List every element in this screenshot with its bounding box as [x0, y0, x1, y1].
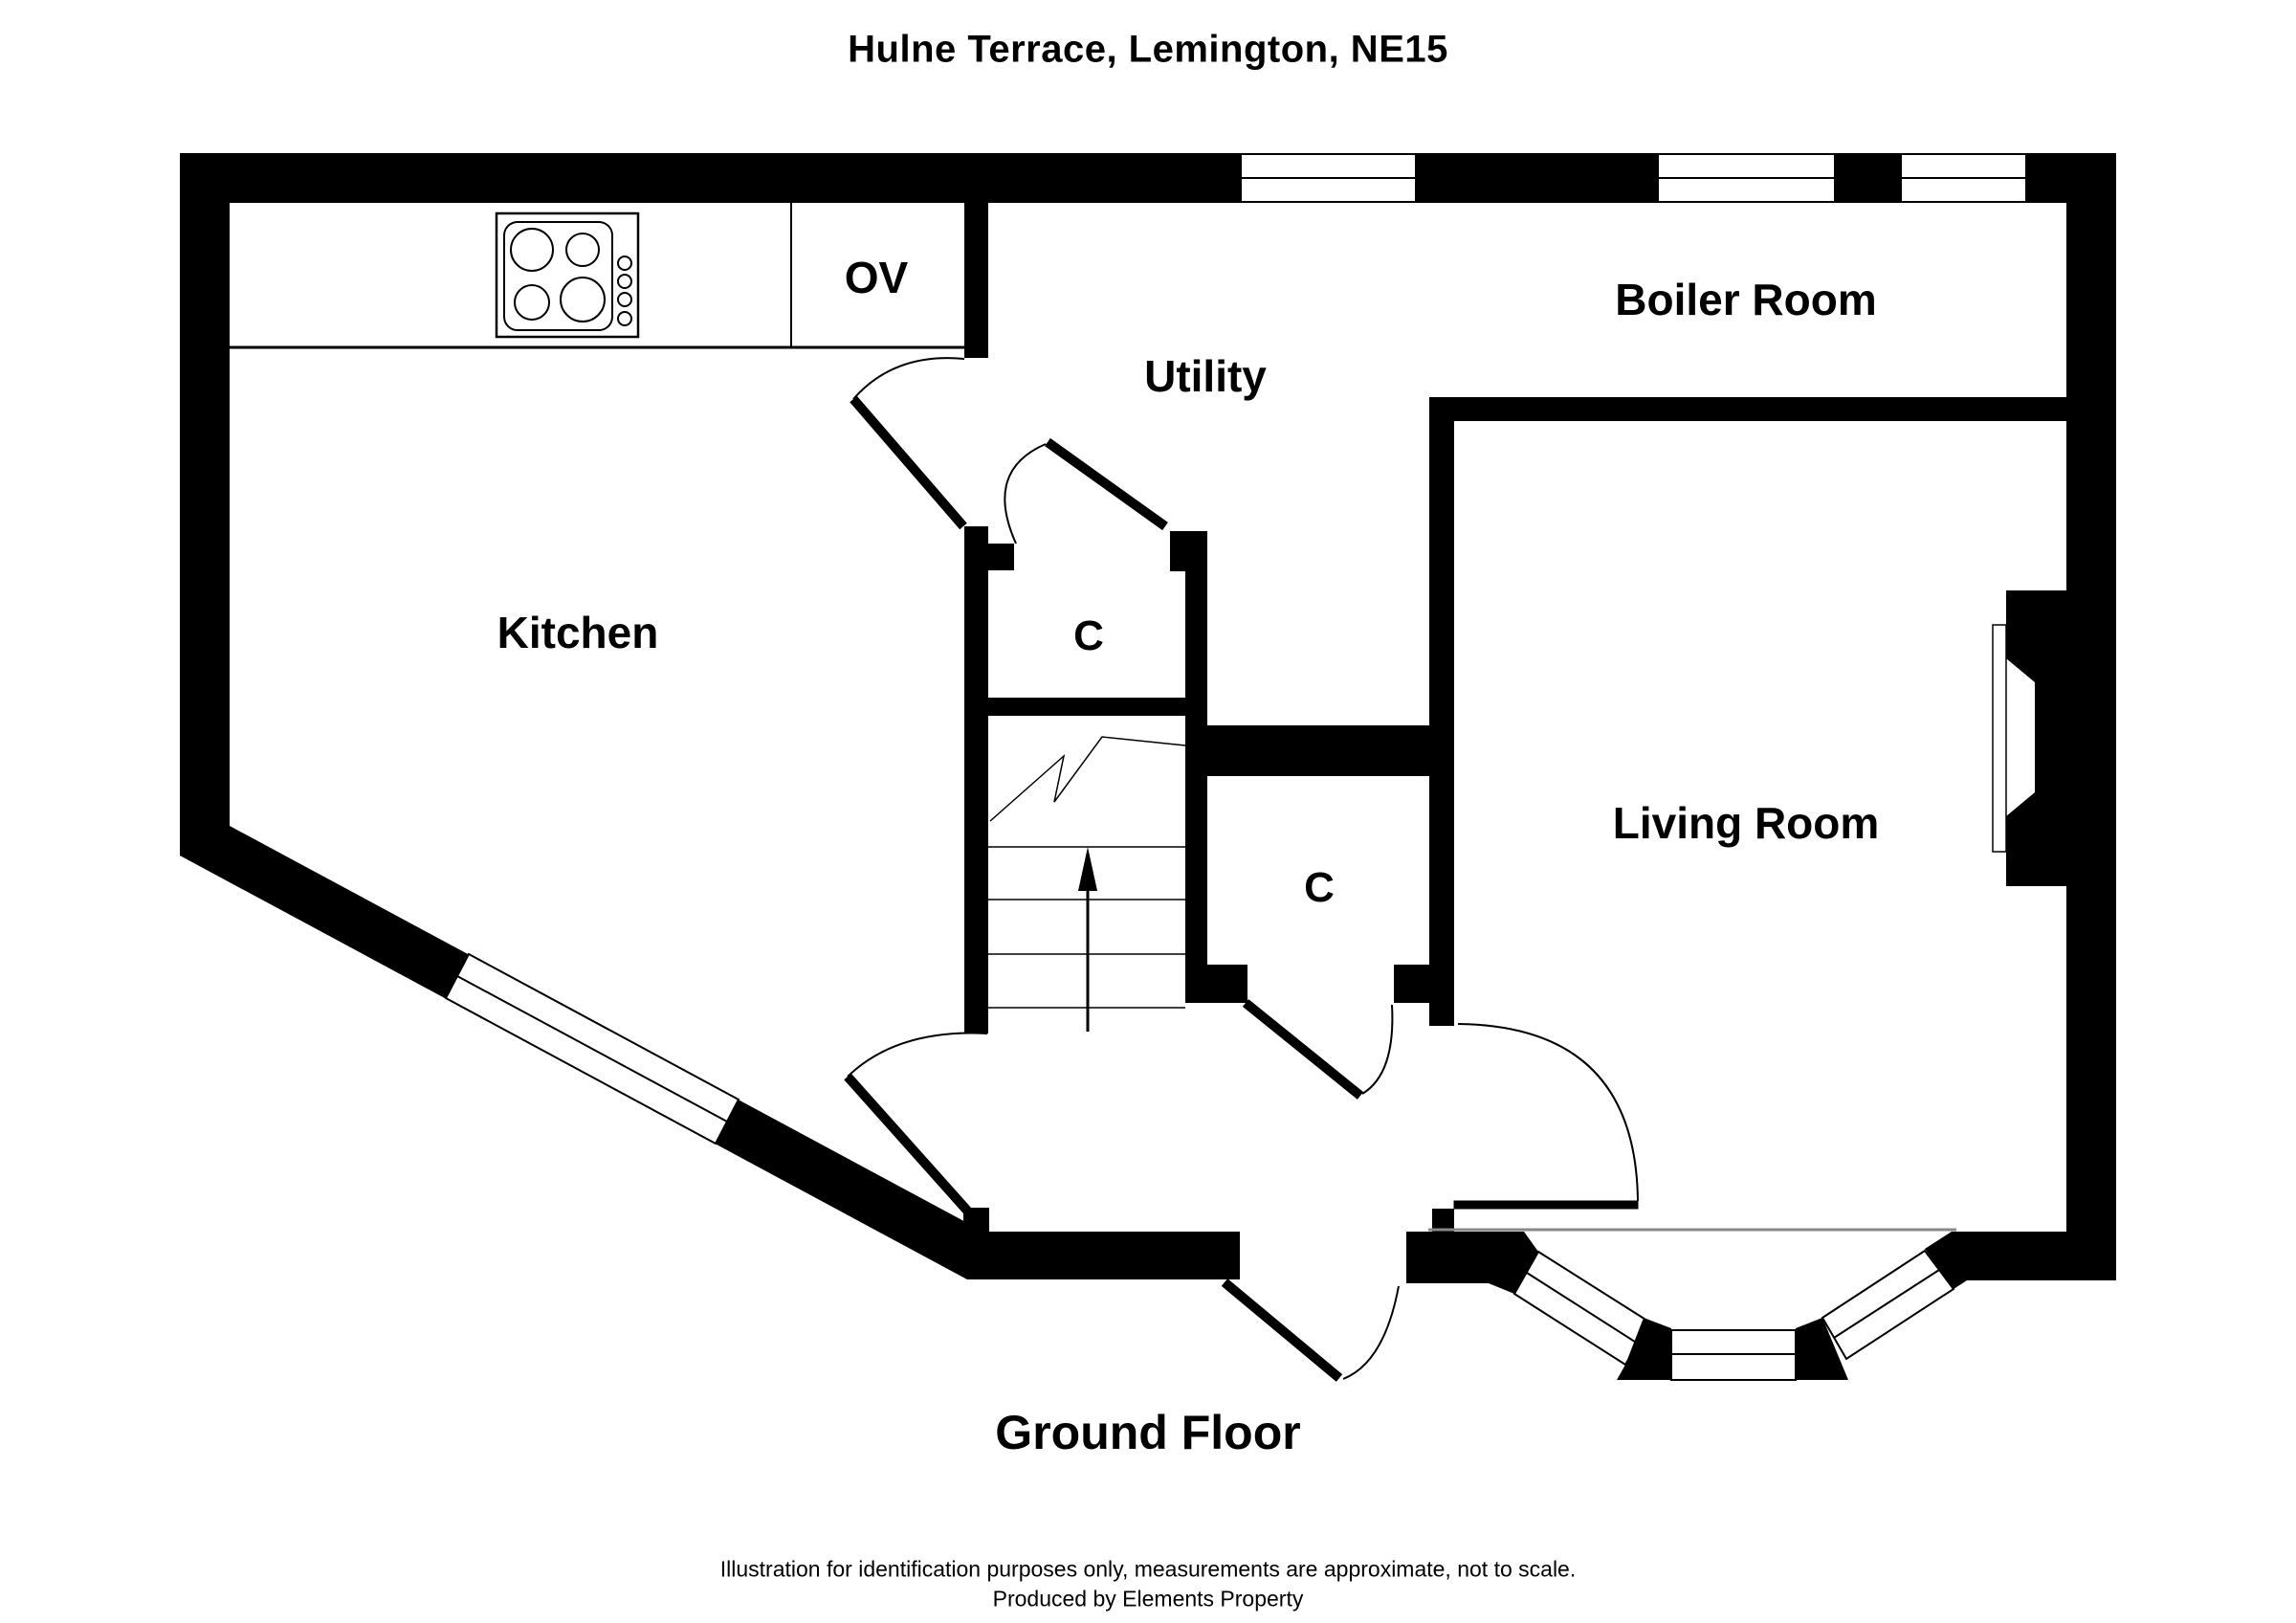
- stove-hob-icon: [497, 213, 638, 337]
- boiler-room-label: Boiler Room: [1615, 274, 1876, 325]
- mid-horizontal-wall: [1189, 725, 1454, 776]
- stairs-up-arrow-icon: [1078, 847, 1097, 1032]
- hall-bottom-wall: [967, 1232, 1240, 1279]
- closet-bottom-right-stub: [1394, 965, 1454, 1003]
- living-room-door-stub: [1432, 1209, 1454, 1232]
- kitchen-window: [446, 954, 739, 1144]
- door-swing-arc: [853, 358, 964, 399]
- door-swing-arc: [1458, 1024, 1638, 1201]
- boiler-room-bottom-wall: [1429, 397, 2066, 421]
- window-glazing: [1514, 1252, 1650, 1365]
- window-glazing: [1901, 154, 2026, 202]
- window-glazing: [1241, 154, 1416, 202]
- closet-bottom-door: [1246, 1003, 1392, 1096]
- door-swing-arc: [1343, 1286, 1399, 1379]
- closet-bottom-left-stub: [1192, 965, 1247, 1003]
- oven-label: OV: [845, 252, 908, 303]
- stair-break-line: [990, 737, 1185, 821]
- utility-door: [853, 358, 964, 526]
- door-swing-arc: [848, 1034, 987, 1077]
- floorplan-drawing: [0, 0, 2296, 1623]
- door-swing-arc: [1004, 444, 1046, 544]
- closet-bottom-label: C: [1304, 864, 1335, 912]
- utility-label: Utility: [1144, 350, 1267, 402]
- closet-top-bottom-wall: [968, 698, 1207, 716]
- kitchen-label: Kitchen: [497, 607, 659, 658]
- living-room-left-wall: [1429, 397, 1454, 1026]
- left-wall: [180, 153, 230, 856]
- page-title: Hulne Terrace, Lemington, NE15: [848, 29, 1448, 72]
- fireplace-hearth: [1993, 625, 2006, 852]
- closet-top-label: C: [1073, 612, 1104, 660]
- chimney-breast: [1993, 590, 2066, 886]
- interior-walls: [964, 203, 2066, 1232]
- bay-window: [1406, 1230, 2116, 1380]
- producer-text: Produced by Elements Property: [993, 1587, 1304, 1612]
- right-wall: [2066, 153, 2116, 1280]
- bay-right-wall: [1925, 1232, 2116, 1289]
- closet-top-door: [1004, 442, 1165, 544]
- closet-top-left-stub: [988, 544, 1014, 570]
- window-glazing: [1671, 1330, 1796, 1380]
- stair-left-wall: [964, 526, 988, 1034]
- floor-name-label: Ground Floor: [995, 1405, 1300, 1460]
- hall-wall-stub: [963, 1208, 989, 1232]
- floorplan-page: Hulne Terrace, Lemington, NE15 Kitchen U…: [0, 0, 2296, 1623]
- living-room-label: Living Room: [1613, 797, 1880, 849]
- kitchen-utility-wall: [964, 203, 988, 358]
- window-glazing: [1822, 1251, 1954, 1359]
- front-door: [1225, 1282, 1399, 1379]
- living-room-door: [1454, 1024, 1638, 1209]
- window-glazing: [1658, 154, 1835, 202]
- disclaimer-text: Illustration for identification purposes…: [720, 1557, 1576, 1583]
- door-swing-arc: [1362, 1005, 1392, 1094]
- bay-left-wall: [1406, 1232, 1538, 1294]
